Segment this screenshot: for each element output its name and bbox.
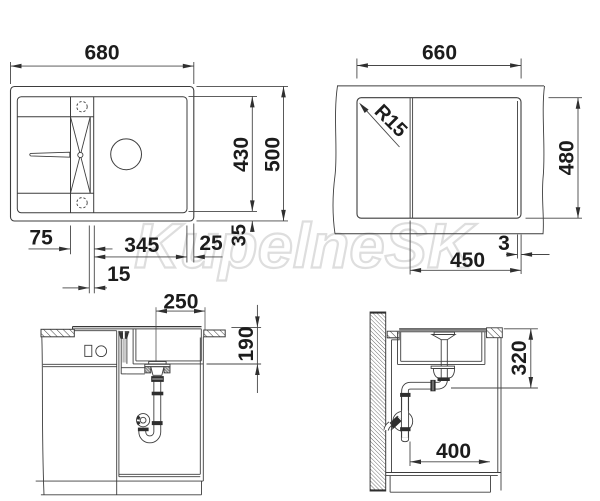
- svg-text:190: 190: [235, 326, 258, 361]
- svg-text:660: 660: [422, 42, 457, 65]
- svg-text:15: 15: [107, 263, 131, 286]
- svg-text:680: 680: [84, 42, 119, 65]
- svg-text:250: 250: [163, 291, 198, 314]
- svg-text:450: 450: [450, 249, 485, 272]
- svg-text:25: 25: [199, 232, 223, 255]
- svg-text:480: 480: [555, 140, 578, 175]
- svg-text:35: 35: [229, 224, 251, 246]
- svg-text:345: 345: [124, 234, 159, 257]
- svg-text:400: 400: [436, 440, 471, 463]
- svg-text:320: 320: [508, 340, 531, 375]
- svg-text:430: 430: [230, 137, 253, 172]
- svg-text:KupelneSK: KupelneSK: [134, 212, 477, 282]
- svg-text:3: 3: [498, 232, 510, 255]
- svg-text:75: 75: [29, 227, 53, 250]
- svg-text:500: 500: [261, 137, 284, 172]
